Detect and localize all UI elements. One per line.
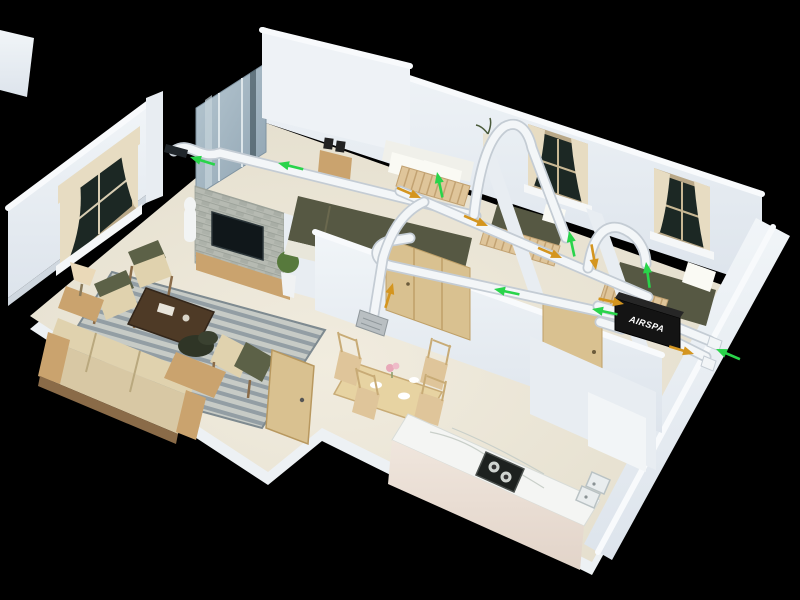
isometric-scene: AIRSPA xyxy=(0,0,800,600)
apartment-ventilation-render: AIRSPA xyxy=(0,0,800,600)
entry-door xyxy=(266,350,314,444)
statue xyxy=(184,197,196,242)
wall-corner-post xyxy=(146,91,163,203)
